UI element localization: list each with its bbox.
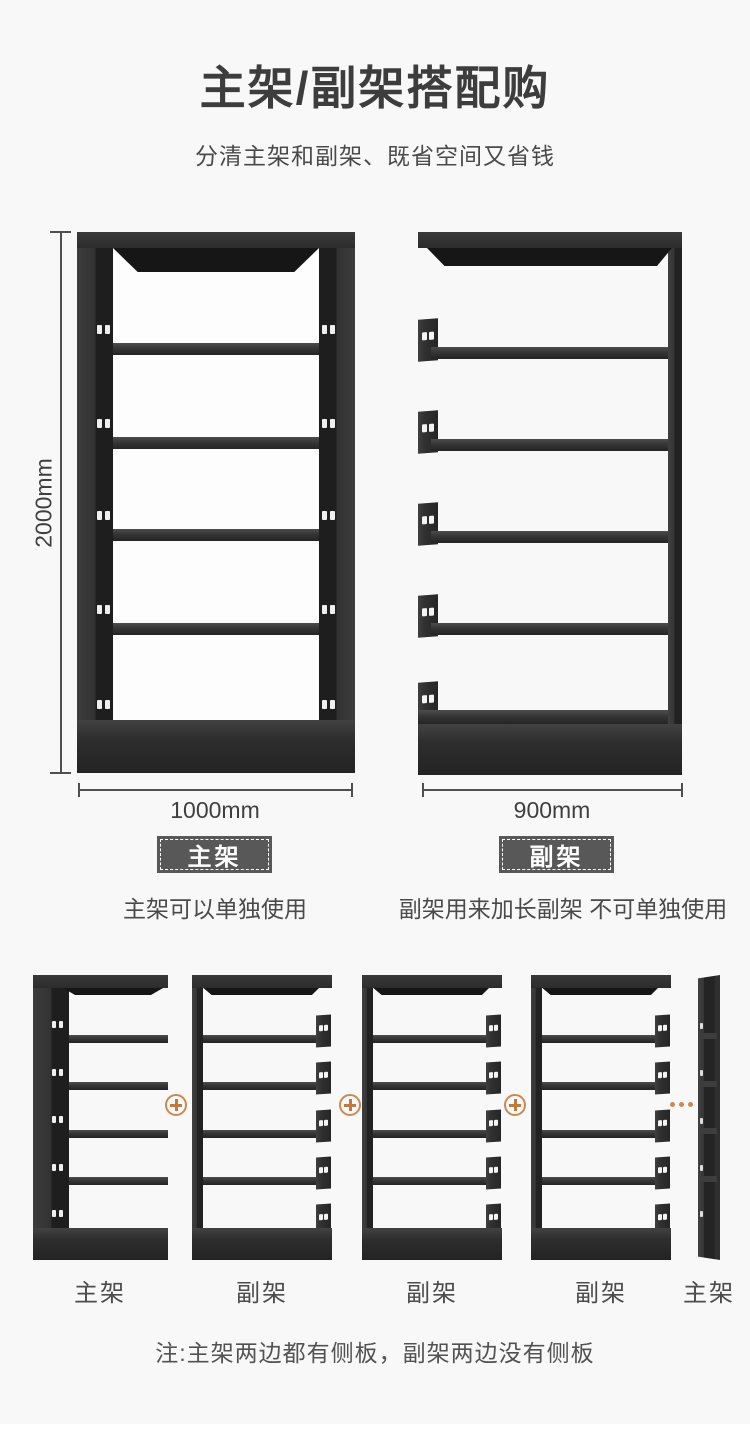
dimension-tick xyxy=(351,783,353,797)
mounting-holes xyxy=(97,511,110,520)
shelf-board xyxy=(373,1035,488,1043)
mounting-hole xyxy=(700,1211,703,1217)
shelf-board xyxy=(113,343,319,355)
shelf-board xyxy=(203,1082,318,1090)
mounting-hole xyxy=(700,1070,703,1076)
mounting-holes xyxy=(52,1021,63,1028)
mounting-holes xyxy=(97,700,110,709)
shelf-rail-mark xyxy=(700,1176,717,1182)
shelf-top-panel xyxy=(33,975,168,988)
shelf-bracket xyxy=(655,1014,670,1047)
dimension-tick xyxy=(78,783,80,797)
shelf-side-panel-left xyxy=(77,232,113,773)
top-panel-shadow xyxy=(371,988,489,995)
shelf-board xyxy=(203,1177,318,1185)
mounting-holes xyxy=(97,419,110,428)
shelf-board xyxy=(373,1082,488,1090)
shelf-board xyxy=(542,1082,657,1090)
sub-shelf-badge: 副架 xyxy=(499,836,614,873)
shelf-top-panel xyxy=(77,232,355,248)
shelf-base xyxy=(418,724,682,775)
mounting-holes xyxy=(52,1116,63,1123)
shelf-side-panel-right xyxy=(319,232,355,773)
shelf-board xyxy=(113,529,319,541)
shelf-board xyxy=(203,1035,318,1043)
mounting-holes xyxy=(52,1069,63,1076)
shelf-board xyxy=(69,1082,168,1090)
shelf-base xyxy=(33,1228,168,1260)
mounting-holes xyxy=(322,325,335,334)
shelf-rail-mark xyxy=(700,1081,717,1087)
dimension-tick xyxy=(422,783,424,797)
mounting-hole xyxy=(700,1023,703,1029)
combo-unit-label: 副架 xyxy=(575,1273,627,1308)
main-shelf-illustration xyxy=(77,232,355,773)
width-dimension-line-main xyxy=(78,789,352,791)
shelf-board xyxy=(373,1130,488,1138)
shelf-rail-mark xyxy=(700,1033,717,1039)
combo-unit-main-side-panel xyxy=(698,975,720,1260)
shelf-top-panel xyxy=(418,232,682,248)
width-dimension-line-sub xyxy=(422,789,682,791)
combo-unit-label: 主架 xyxy=(74,1273,126,1308)
shelf-board xyxy=(542,1130,657,1138)
shelf-bracket xyxy=(486,1061,501,1094)
plus-in-circle-icon xyxy=(504,1094,526,1116)
shelf-bracket xyxy=(486,1156,501,1189)
section-divider xyxy=(0,1424,750,1437)
top-panel-shadow xyxy=(201,988,319,995)
sub-shelf-description: 副架用来加长副架 不可单独使用 xyxy=(399,890,727,924)
combo-unit-sub xyxy=(531,975,671,1260)
combo-unit-main xyxy=(33,975,168,1260)
top-panel-shadow xyxy=(113,248,319,272)
shelf-board xyxy=(113,623,319,635)
shelf-top-panel xyxy=(531,975,671,988)
width-dimension-label-sub: 900mm xyxy=(514,797,591,824)
shelf-board xyxy=(431,347,668,359)
mounting-holes xyxy=(97,325,110,334)
combo-unit-label: 副架 xyxy=(406,1273,458,1308)
shelf-interior xyxy=(113,248,319,720)
sub-shelf-illustration xyxy=(418,232,682,775)
page-subtitle: 分清主架和副架、既省空间又省钱 xyxy=(0,137,750,171)
shelf-board xyxy=(69,1177,168,1185)
main-shelf-description: 主架可以单独使用 xyxy=(123,890,307,924)
mounting-holes xyxy=(322,511,335,520)
shelf-side-panel xyxy=(33,980,69,1230)
height-dimension-label: 2000mm xyxy=(31,458,58,547)
mounting-holes xyxy=(322,700,335,709)
mounting-hole xyxy=(700,1165,703,1171)
shelf-board xyxy=(542,1177,657,1185)
shelf-bracket xyxy=(316,1109,331,1142)
dimension-tick xyxy=(681,783,683,797)
shelf-board xyxy=(203,1130,318,1138)
plus-in-circle-icon xyxy=(165,1094,187,1116)
top-panel-shadow xyxy=(63,988,163,995)
shelf-board xyxy=(542,1035,657,1043)
shelf-bracket xyxy=(316,1061,331,1094)
mounting-holes xyxy=(322,605,335,614)
shelf-upright-post xyxy=(192,975,203,1233)
mounting-holes xyxy=(97,605,110,614)
shelf-board xyxy=(373,1177,488,1185)
top-panel-shadow xyxy=(540,988,658,995)
shelf-board xyxy=(431,439,668,451)
shelf-base xyxy=(362,1228,502,1260)
shelf-bracket xyxy=(655,1109,670,1142)
shelf-board xyxy=(69,1130,168,1138)
combo-unit-label: 副架 xyxy=(236,1273,288,1308)
shelf-board xyxy=(431,531,668,543)
shelf-bracket xyxy=(655,1061,670,1094)
mounting-holes xyxy=(52,1164,63,1171)
shelf-upright-post xyxy=(362,975,373,1233)
shelf-bracket xyxy=(316,1156,331,1189)
width-dimension-label-main: 1000mm xyxy=(170,797,259,824)
page-title: 主架/副架搭配购 xyxy=(0,52,750,118)
combo-unit-sub xyxy=(362,975,502,1260)
shelf-upright-post xyxy=(531,975,542,1233)
shelf-board xyxy=(113,437,319,449)
plus-in-circle-icon xyxy=(339,1094,361,1116)
shelf-base xyxy=(77,720,355,773)
ellipsis-icon xyxy=(670,1102,693,1107)
product-detail-infographic: 主架/副架搭配购 分清主架和副架、既省空间又省钱 2000mm xyxy=(0,0,750,1437)
shelf-rail-mark xyxy=(700,1128,717,1134)
shelf-top-panel xyxy=(192,975,332,988)
dimension-tick-top xyxy=(50,231,71,233)
shelf-top-panel xyxy=(362,975,502,988)
dimension-tick-bottom xyxy=(50,772,71,774)
shelf-bracket xyxy=(486,1014,501,1047)
shelf-upright-post xyxy=(668,232,682,738)
shelf-bracket xyxy=(316,1014,331,1047)
footnote: 注:主架两边都有侧板，副架两边没有侧板 xyxy=(0,1334,750,1368)
shelf-base xyxy=(531,1228,671,1260)
mounting-holes xyxy=(52,1210,63,1217)
shelf-board xyxy=(69,1035,168,1043)
shelf-board xyxy=(431,623,668,635)
main-shelf-badge: 主架 xyxy=(157,836,272,873)
mounting-holes xyxy=(322,419,335,428)
combo-unit-sub xyxy=(192,975,332,1260)
height-dimension-line xyxy=(60,232,62,773)
shelf-base-board xyxy=(418,710,668,724)
mounting-hole xyxy=(700,1118,703,1124)
shelf-bracket xyxy=(655,1156,670,1189)
shelf-bracket xyxy=(486,1109,501,1142)
shelf-base xyxy=(192,1228,332,1260)
combo-unit-label: 主架 xyxy=(683,1273,735,1308)
top-panel-shadow xyxy=(422,248,672,266)
